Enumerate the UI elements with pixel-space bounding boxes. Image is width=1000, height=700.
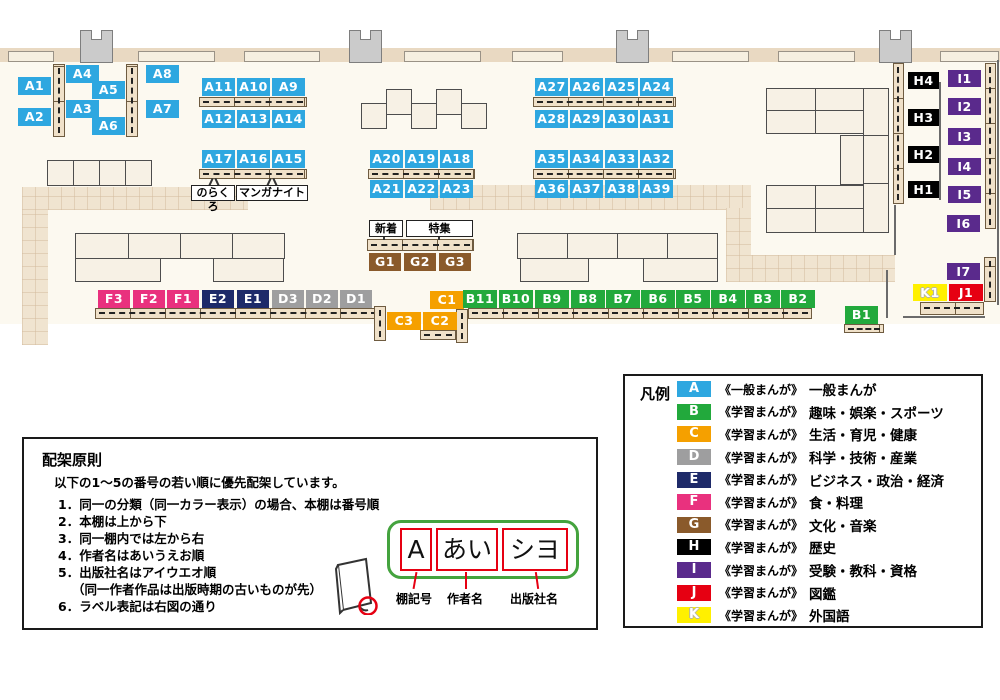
- shelf-label-a28: A28: [535, 110, 568, 128]
- legend-type: 《学習まんが》: [719, 426, 803, 443]
- legend-panel: 凡例 A 《一般まんが》 一般まんが B 《学習まんが》 趣味・娯楽・スポーツ …: [623, 374, 983, 628]
- pillar: [879, 30, 912, 63]
- shelf-label-a33: A33: [605, 150, 638, 168]
- shelf-label-a23: A23: [440, 180, 473, 198]
- shelf-label-a3: A3: [66, 100, 99, 118]
- legend-row-j: J 《学習まんが》 図鑑: [677, 581, 944, 604]
- table: [815, 208, 864, 233]
- shelf-label-a32: A32: [640, 150, 673, 168]
- table: [75, 258, 161, 282]
- wall-counter: [8, 51, 54, 62]
- walkway-floor: [726, 208, 751, 258]
- shelf-label-h2: H2: [908, 146, 939, 163]
- floor-map-page: のらくろ マンガナイト 新着 特集 A1 A2 A4 A5 A3 A6 A8 A…: [0, 0, 1000, 700]
- table: [667, 233, 718, 259]
- legend-row-f: F 《学習まんが》 食・料理: [677, 491, 944, 514]
- shelf-label-a38: A38: [605, 180, 638, 198]
- legend-category: ビジネス・政治・経済: [809, 470, 944, 490]
- table: [863, 135, 889, 184]
- walkway-floor: [22, 187, 48, 345]
- bookshelf: [199, 97, 307, 107]
- shelf-label-a15: A15: [272, 150, 305, 168]
- shelving-principles-panel: 配架原則 以下の1～5の番号の若い順に優先配架しています。 1．同一の分類（同一…: [22, 437, 598, 630]
- shelf-label-a18: A18: [440, 150, 473, 168]
- shelf-label-i1: I1: [948, 70, 981, 87]
- legend-row-g: G 《学習まんが》 文化・音楽: [677, 514, 944, 537]
- shelf-label-d1: D1: [340, 290, 372, 308]
- legend-chip-c: C: [677, 426, 711, 442]
- legend-chip-e: E: [677, 472, 711, 488]
- shelf-label-a39: A39: [640, 180, 673, 198]
- table: [75, 233, 129, 259]
- shelf-label-i5: I5: [948, 186, 981, 203]
- table: [232, 233, 285, 259]
- shelf-label-a9: A9: [272, 78, 305, 96]
- shelf-label-i2: I2: [948, 98, 981, 115]
- shelf-label-a1: A1: [18, 77, 51, 95]
- legend-row-k: K 《学習まんが》 外国語: [677, 604, 944, 627]
- shelf-label-b9: B9: [535, 290, 569, 308]
- shelf-label-a26: A26: [570, 78, 603, 96]
- legend-chip-b: B: [677, 404, 711, 420]
- legend-category: 歴史: [809, 537, 836, 557]
- shelf-label-a12: A12: [202, 110, 235, 128]
- shelf-label-e2: E2: [202, 290, 234, 308]
- table: [436, 89, 462, 115]
- callout-norakuro: のらくろ: [191, 185, 235, 201]
- principles-title: 配架原則: [42, 449, 102, 470]
- label-shelf-code: A: [400, 528, 432, 571]
- shelf-label-a16: A16: [237, 150, 270, 168]
- shelf-label-j1: J1: [949, 284, 983, 301]
- bookshelf: [920, 302, 984, 315]
- table: [517, 233, 568, 259]
- shelf-label-a8: A8: [146, 65, 179, 83]
- shelf-label-h1: H1: [908, 181, 939, 198]
- legend-type: 《一般まんが》: [719, 381, 803, 398]
- legend-rows: A 《一般まんが》 一般まんが B 《学習まんが》 趣味・娯楽・スポーツ C 《…: [677, 378, 944, 627]
- shelf-label-i7: I7: [947, 263, 980, 280]
- legend-category: 生活・育児・健康: [809, 424, 917, 444]
- legend-row-i: I 《学習まんが》 受験・教科・資格: [677, 559, 944, 582]
- shelf-label-a35: A35: [535, 150, 568, 168]
- shelf-label-a13: A13: [237, 110, 270, 128]
- shelf-label-b2: B2: [781, 290, 815, 308]
- shelf-label-b6: B6: [641, 290, 675, 308]
- bookshelf: [533, 169, 676, 179]
- legend-chip-g: G: [677, 517, 711, 533]
- shelf-label-a17: A17: [202, 150, 235, 168]
- shelf-label-i4: I4: [948, 158, 981, 175]
- principles-intro: 以下の1～5の番号の若い順に優先配架しています。: [54, 472, 345, 491]
- shelf-label-b4: B4: [711, 290, 745, 308]
- walkway-floor: [726, 255, 895, 282]
- legend-type: 《学習まんが》: [719, 607, 803, 624]
- bookshelf: [368, 169, 475, 179]
- shelf-label-h4: H4: [908, 72, 939, 89]
- table: [180, 233, 233, 259]
- wall-line: [903, 316, 985, 318]
- shelf-label-c2: C2: [423, 312, 457, 330]
- legend-type: 《学習まんが》: [719, 562, 803, 579]
- shelf-label-b7: B7: [606, 290, 640, 308]
- pillar-notch: [627, 30, 638, 40]
- table: [520, 258, 589, 282]
- shelf-label-a7: A7: [146, 100, 179, 118]
- shelf-label-i6: I6: [947, 215, 980, 232]
- shelf-label-a6: A6: [92, 117, 125, 135]
- shelf-label-a22: A22: [405, 180, 438, 198]
- legend-row-c: C 《学習まんが》 生活・育児・健康: [677, 423, 944, 446]
- wall-line: [939, 82, 941, 200]
- legend-type: 《学習まんが》: [719, 539, 803, 556]
- shelf-label-g2: G2: [404, 253, 436, 271]
- shelf-label-g3: G3: [439, 253, 471, 271]
- shelf-label-a20: A20: [370, 150, 403, 168]
- label-publisher: シヨ: [502, 528, 568, 571]
- shelf-label-i3: I3: [948, 128, 981, 145]
- legend-type: 《学習まんが》: [719, 584, 803, 601]
- shelf-label-f3: F3: [98, 290, 130, 308]
- shelf-label-a36: A36: [535, 180, 568, 198]
- legend-row-b: B 《学習まんが》 趣味・娯楽・スポーツ: [677, 401, 944, 424]
- bookshelf: [367, 239, 474, 251]
- bookshelf: [374, 306, 386, 341]
- table: [361, 103, 387, 129]
- table: [386, 89, 412, 115]
- callout-new-arrivals: 新着: [369, 220, 403, 237]
- legend-category: 図鑑: [809, 583, 836, 603]
- wall-counter: [940, 51, 999, 62]
- shelf-label-b1: B1: [845, 306, 878, 324]
- shelf-label-a37: A37: [570, 180, 603, 198]
- legend-chip-j: J: [677, 585, 711, 601]
- shelf-label-a27: A27: [535, 78, 568, 96]
- legend-type: 《学習まんが》: [719, 403, 803, 420]
- table: [411, 103, 437, 129]
- shelf-label-a2: A2: [18, 108, 51, 126]
- pillar-notch: [890, 30, 901, 40]
- wall-counter: [672, 51, 749, 62]
- shelf-label-a21: A21: [370, 180, 403, 198]
- table: [766, 88, 816, 111]
- legend-category: 趣味・娯楽・スポーツ: [809, 402, 944, 422]
- pillar: [349, 30, 382, 63]
- table: [766, 185, 816, 209]
- wall-counter: [244, 51, 320, 62]
- legend-chip-d: D: [677, 449, 711, 465]
- bookshelf: [456, 309, 468, 343]
- table: [461, 103, 487, 129]
- legend-chip-k: K: [677, 607, 711, 623]
- bookshelf: [893, 63, 904, 204]
- legend-type: 《学習まんが》: [719, 494, 803, 511]
- table: [815, 185, 864, 209]
- shelf-label-d3: D3: [272, 290, 304, 308]
- shelf-label-a30: A30: [605, 110, 638, 128]
- legend-type: 《学習まんが》: [719, 471, 803, 488]
- callout-manga-night: マンガナイト: [236, 185, 308, 201]
- legend-chip-h: H: [677, 539, 711, 555]
- table: [840, 135, 864, 185]
- table: [213, 258, 284, 282]
- bookshelf: [468, 308, 812, 319]
- shelf-label-b3: B3: [746, 290, 780, 308]
- shelf-label-f2: F2: [133, 290, 165, 308]
- wall-line: [886, 270, 888, 318]
- shelf-label-e1: E1: [237, 290, 269, 308]
- wall-line: [894, 205, 896, 255]
- legend-category: 外国語: [809, 605, 850, 625]
- bookshelf: [126, 64, 138, 137]
- shelf-label-a31: A31: [640, 110, 673, 128]
- wall-line: [997, 60, 999, 305]
- bookshelf: [533, 97, 676, 107]
- legend-row-h: H 《学習まんが》 歴史: [677, 536, 944, 559]
- shelf-label-b8: B8: [571, 290, 605, 308]
- legend-type: 《学習まんが》: [719, 516, 803, 533]
- table: [815, 88, 864, 111]
- bookshelf: [53, 64, 65, 137]
- bookshelf: [844, 324, 884, 333]
- legend-category: 科学・技術・産業: [809, 447, 917, 467]
- shelf-label-a25: A25: [605, 78, 638, 96]
- caption-shelf-code: 棚記号: [396, 590, 432, 607]
- shelf-label-h3: H3: [908, 109, 939, 126]
- table: [125, 160, 152, 186]
- pointer-line: [465, 572, 467, 589]
- wall-counter: [138, 51, 215, 62]
- legend-category: 一般まんが: [809, 379, 877, 399]
- shelf-label-a10: A10: [237, 78, 270, 96]
- shelf-label-b11: B11: [463, 290, 497, 308]
- pillar: [80, 30, 113, 63]
- legend-category: 受験・教科・資格: [809, 560, 917, 580]
- pillar-notch: [91, 30, 102, 40]
- shelf-label-c3: C3: [387, 312, 421, 330]
- caption-author: 作者名: [447, 590, 483, 607]
- legend-row-d: D 《学習まんが》 科学・技術・産業: [677, 446, 944, 469]
- shelf-label-b10: B10: [499, 290, 533, 308]
- legend-chip-f: F: [677, 494, 711, 510]
- wall-counter: [778, 51, 855, 62]
- wall-counter: [404, 51, 481, 62]
- pillar-notch: [360, 30, 371, 40]
- shelf-label-a29: A29: [570, 110, 603, 128]
- table: [567, 233, 618, 259]
- table: [766, 208, 816, 233]
- bookshelf: [984, 257, 996, 302]
- table: [128, 233, 181, 259]
- table: [99, 160, 126, 186]
- table: [643, 258, 718, 282]
- principles-item: 6．ラベル表記は右図の通り: [58, 596, 217, 615]
- legend-title: 凡例: [640, 383, 670, 404]
- shelf-label-a19: A19: [405, 150, 438, 168]
- table: [863, 88, 889, 136]
- table: [766, 110, 816, 134]
- shelf-label-a34: A34: [570, 150, 603, 168]
- callout-feature: 特集: [406, 220, 473, 237]
- table: [73, 160, 100, 186]
- shelf-label-a11: A11: [202, 78, 235, 96]
- table: [815, 110, 864, 134]
- shelf-label-b5: B5: [676, 290, 710, 308]
- shelf-label-a24: A24: [640, 78, 673, 96]
- wall-counter: [512, 51, 563, 62]
- legend-chip-a: A: [677, 381, 711, 397]
- shelf-label-a14: A14: [272, 110, 305, 128]
- legend-category: 文化・音楽: [809, 515, 877, 535]
- shelf-label-f1: F1: [167, 290, 199, 308]
- legend-row-e: E 《学習まんが》 ビジネス・政治・経済: [677, 468, 944, 491]
- label-author: あい: [436, 528, 498, 571]
- table: [47, 160, 74, 186]
- book-icon: [328, 549, 384, 615]
- bookshelf: [95, 308, 381, 319]
- shelf-label-d2: D2: [306, 290, 338, 308]
- legend-chip-i: I: [677, 562, 711, 578]
- bookshelf: [985, 63, 996, 229]
- shelf-label-c1: C1: [430, 291, 464, 309]
- shelf-label-g1: G1: [369, 253, 401, 271]
- table: [617, 233, 668, 259]
- legend-type: 《学習まんが》: [719, 449, 803, 466]
- legend-row-a: A 《一般まんが》 一般まんが: [677, 378, 944, 401]
- legend-category: 食・料理: [809, 492, 863, 512]
- shelf-label-k1: K1: [913, 284, 947, 301]
- pillar: [616, 30, 649, 63]
- shelf-label-a5: A5: [92, 81, 125, 99]
- table: [863, 183, 889, 233]
- caption-publisher: 出版社名: [510, 590, 558, 607]
